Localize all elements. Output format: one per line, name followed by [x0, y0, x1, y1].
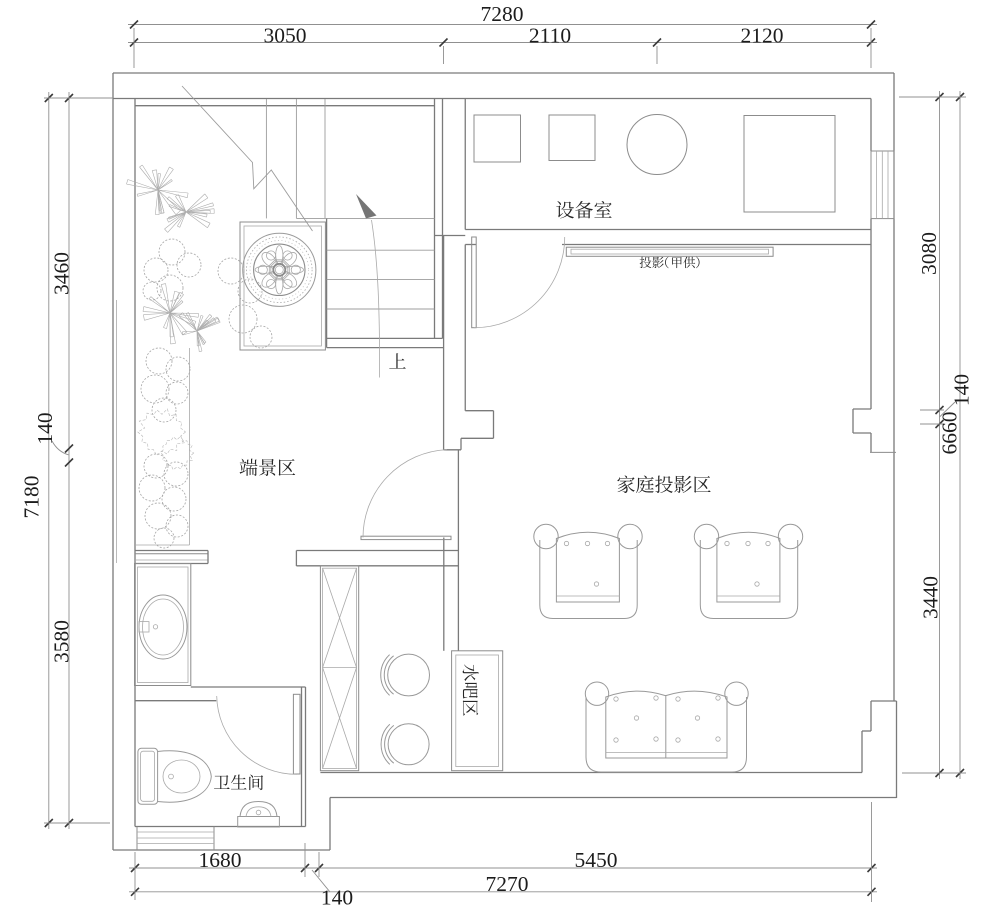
svg-text:3580: 3580 — [50, 620, 74, 663]
svg-text:140: 140 — [321, 886, 353, 910]
svg-text:140: 140 — [950, 374, 974, 406]
svg-text:7280: 7280 — [481, 2, 524, 26]
svg-text:3460: 3460 — [50, 252, 74, 295]
svg-text:140: 140 — [33, 412, 57, 444]
svg-text:5450: 5450 — [575, 848, 618, 872]
svg-text:2110: 2110 — [529, 24, 571, 48]
svg-text:3440: 3440 — [919, 576, 943, 619]
svg-text:1680: 1680 — [199, 848, 242, 872]
svg-text:3080: 3080 — [917, 232, 941, 275]
svg-text:7180: 7180 — [20, 476, 44, 519]
svg-text:3050: 3050 — [264, 24, 307, 48]
svg-text:2120: 2120 — [741, 24, 784, 48]
svg-text:7270: 7270 — [486, 872, 529, 896]
svg-text:6660: 6660 — [938, 412, 962, 455]
